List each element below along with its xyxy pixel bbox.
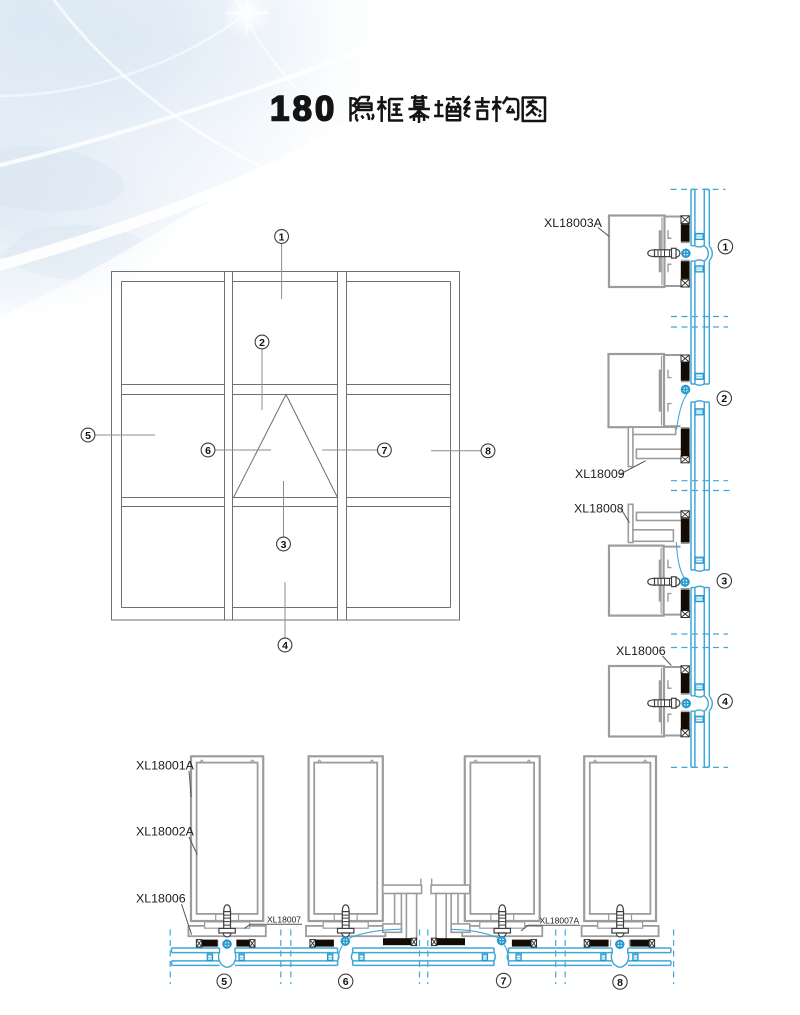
svg-text:XL18006: XL18006 (616, 644, 666, 658)
svg-text:2: 2 (721, 393, 727, 405)
svg-text:XL18003A: XL18003A (544, 216, 603, 230)
svg-text:XL18002A: XL18002A (136, 825, 195, 839)
svg-text:XL18006: XL18006 (136, 892, 186, 906)
svg-text:8: 8 (485, 446, 491, 458)
svg-text:7: 7 (501, 975, 507, 987)
svg-text:2: 2 (259, 337, 265, 349)
svg-text:4: 4 (722, 696, 728, 708)
svg-text:5: 5 (221, 976, 227, 988)
svg-text:XL18007: XL18007 (267, 915, 301, 925)
svg-text:XL18007A: XL18007A (540, 916, 580, 926)
svg-text:6: 6 (205, 445, 211, 457)
svg-text:180: 180 (270, 90, 337, 129)
svg-text:8: 8 (617, 977, 623, 989)
svg-text:5: 5 (85, 430, 91, 442)
svg-text:XL18008: XL18008 (574, 502, 624, 516)
svg-text:7: 7 (381, 445, 387, 457)
svg-text:XL18009: XL18009 (575, 467, 625, 481)
svg-text:3: 3 (721, 576, 727, 588)
svg-text:1: 1 (722, 242, 728, 254)
svg-text:1: 1 (279, 231, 285, 243)
svg-text:XL18001A: XL18001A (136, 759, 195, 773)
svg-text:3: 3 (281, 539, 287, 551)
svg-text:6: 6 (343, 976, 349, 988)
svg-text:4: 4 (282, 640, 288, 652)
